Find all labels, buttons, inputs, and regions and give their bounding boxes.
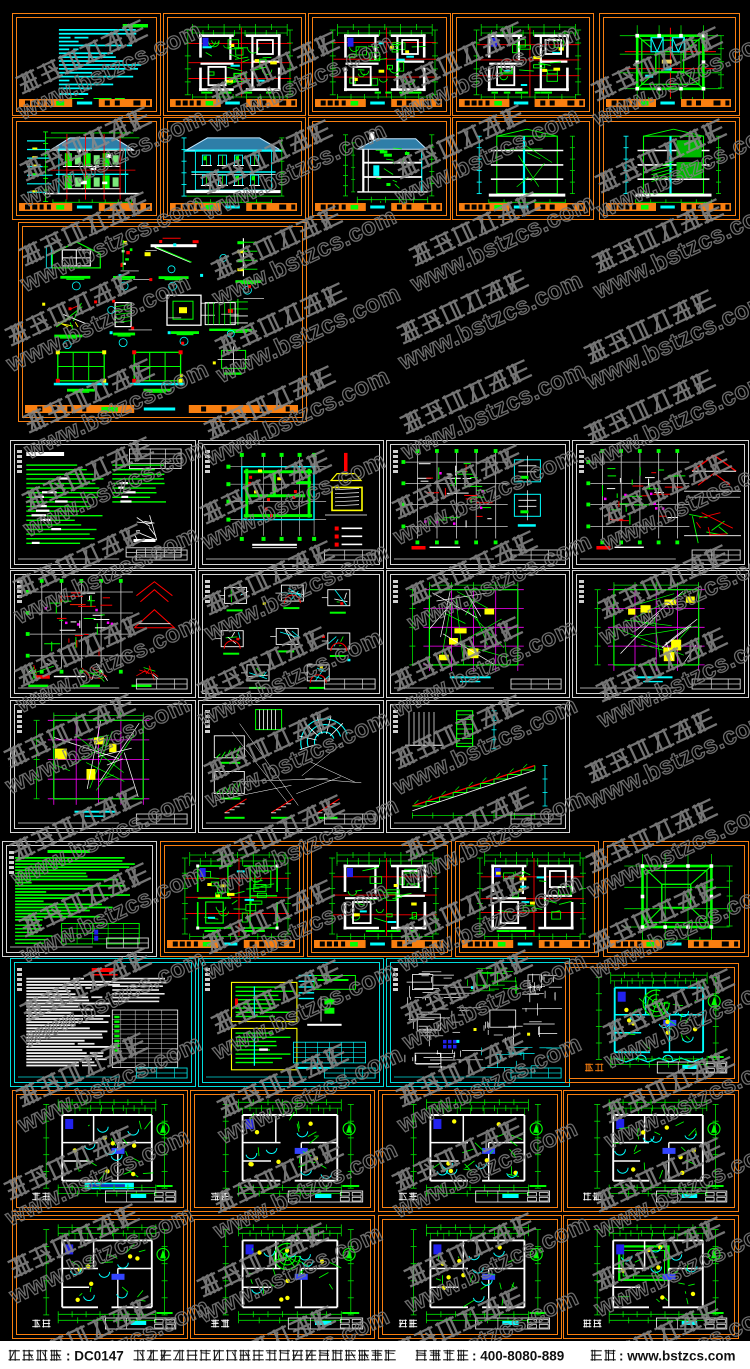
svg-text:: 400-8080-889: : 400-8080-889 [472, 1349, 564, 1364]
svg-text:: www.bstzcs.com: : www.bstzcs.com [619, 1349, 736, 1364]
svg-text:: DC0147: : DC0147 [66, 1349, 124, 1364]
